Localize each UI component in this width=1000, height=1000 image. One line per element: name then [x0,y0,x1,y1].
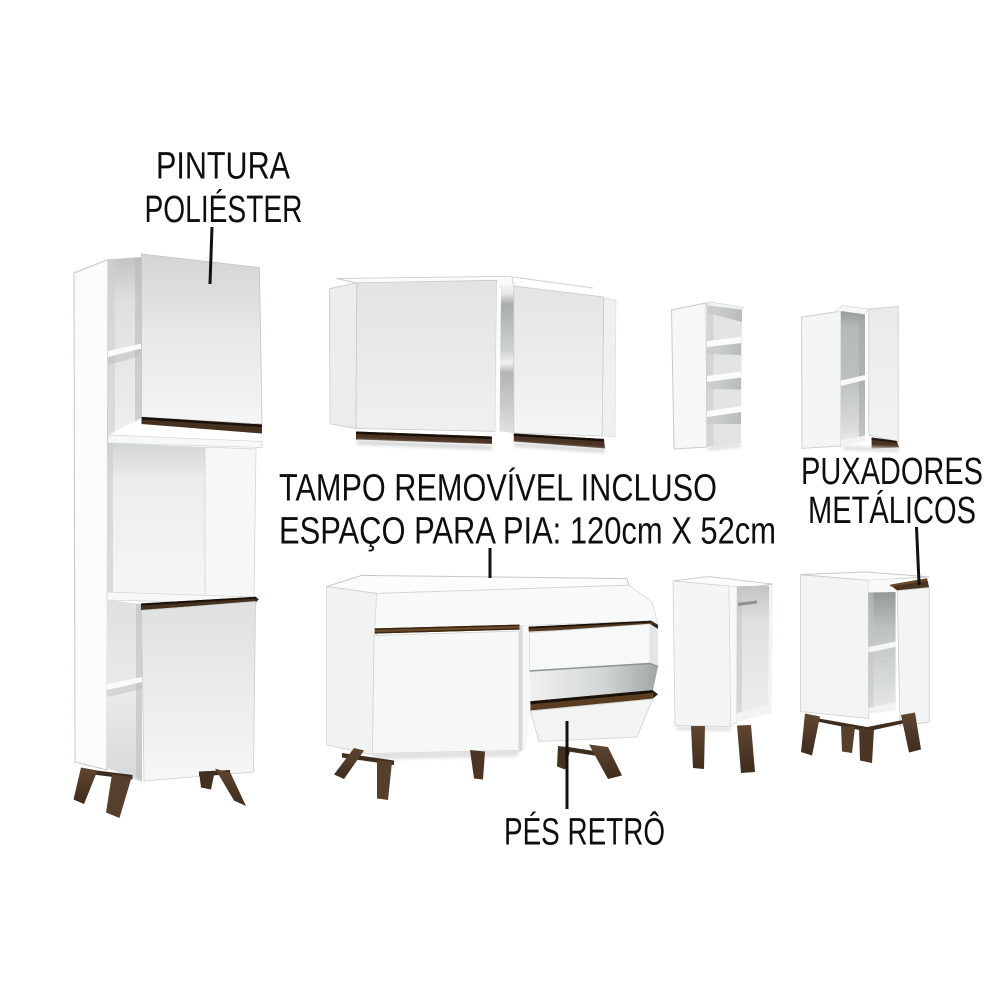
svg-text:TAMPO REMOVÍVEL INCLUSO: TAMPO REMOVÍVEL INCLUSO [279,467,717,510]
svg-text:METÁLICOS: METÁLICOS [808,489,976,532]
svg-text:POLIÉSTER: POLIÉSTER [145,188,303,231]
svg-text:PUXADORES: PUXADORES [801,451,983,493]
svg-text:PINTURA: PINTURA [156,146,291,188]
svg-text:PÉS RETRÔ: PÉS RETRÔ [504,810,665,854]
svg-text:ESPAÇO PARA PIA: 120cm X 52cm: ESPAÇO PARA PIA: 120cm X 52cm [279,511,776,553]
